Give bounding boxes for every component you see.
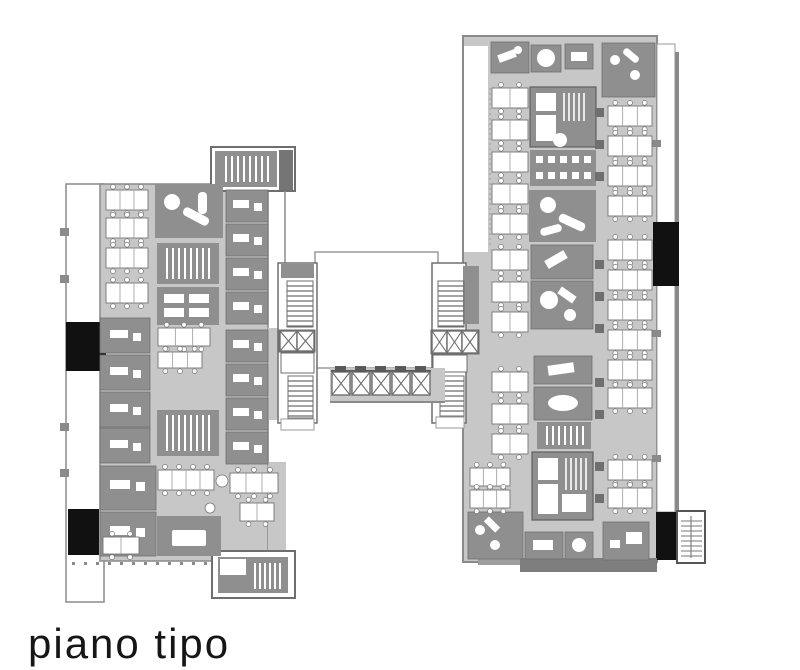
desk — [110, 480, 130, 489]
desk-bench — [608, 324, 652, 355]
round-table — [537, 49, 555, 67]
balcony-tick — [652, 330, 661, 337]
left-gap — [464, 46, 488, 252]
table — [189, 294, 209, 303]
desk — [254, 377, 262, 385]
floor-plan-canvas: piano tipo — [0, 0, 800, 670]
balcony-tick — [60, 423, 69, 431]
table — [164, 308, 184, 317]
desk — [610, 540, 620, 548]
desk — [133, 333, 141, 341]
wc-stalls — [547, 426, 583, 445]
sofa — [540, 197, 556, 213]
round-table — [572, 538, 586, 552]
desk — [233, 302, 249, 310]
desk-bench — [608, 354, 652, 385]
desk — [133, 443, 141, 451]
vestibule — [281, 353, 314, 373]
truss-cap — [355, 366, 366, 372]
table — [533, 540, 553, 550]
desk — [254, 411, 262, 419]
desk-bench — [608, 294, 652, 325]
floor-plan-svg — [0, 0, 800, 670]
desk — [254, 305, 262, 313]
truss-cap — [395, 366, 406, 372]
left-core-top — [281, 264, 314, 278]
elevator-cab — [447, 331, 462, 353]
table — [626, 532, 642, 544]
desk — [254, 343, 262, 351]
desk-bench — [106, 277, 148, 308]
plan-title: piano tipo — [28, 620, 230, 668]
balcony-tick — [60, 469, 69, 477]
lounge-room — [468, 512, 523, 559]
table — [189, 308, 209, 317]
landing — [436, 417, 464, 428]
truss-cap — [375, 366, 386, 372]
elevator-cab — [297, 331, 314, 351]
desk-bench — [470, 484, 510, 513]
desk — [254, 271, 262, 279]
desk-bench — [608, 100, 652, 131]
balcony-tick — [60, 228, 69, 236]
truss-panel — [372, 372, 390, 395]
desk — [233, 374, 249, 382]
desk — [136, 482, 145, 491]
desk-bench — [608, 130, 652, 161]
desk — [136, 528, 145, 537]
desk-bench — [608, 160, 652, 191]
right-wing — [463, 36, 705, 572]
desk — [233, 234, 249, 242]
desk-bench — [106, 184, 148, 215]
core-cell — [562, 494, 586, 512]
desk — [233, 340, 249, 348]
truss-panel — [392, 372, 410, 395]
core-lobby — [553, 133, 567, 147]
desk — [133, 407, 141, 415]
desk-bench — [158, 346, 202, 373]
core-cell — [538, 484, 558, 514]
desk — [110, 440, 128, 448]
desk-bench — [608, 234, 652, 265]
outer-edge — [675, 52, 679, 552]
oval-table — [548, 395, 578, 411]
balcony-tick — [652, 455, 661, 462]
plant — [490, 540, 500, 550]
desk — [233, 442, 249, 450]
sofa — [164, 194, 180, 210]
desk — [110, 330, 128, 338]
round-table — [205, 503, 215, 513]
sofa — [198, 192, 207, 214]
central-link — [278, 191, 479, 430]
chair — [514, 46, 522, 54]
meeting-room — [157, 287, 219, 325]
elevator-cab — [432, 331, 447, 353]
truss-panel — [352, 372, 370, 395]
plant — [630, 70, 640, 80]
truss-cap — [335, 366, 346, 372]
round-table — [216, 475, 228, 487]
desk — [110, 404, 128, 412]
balcony-tick — [652, 140, 661, 147]
desk — [254, 237, 262, 245]
core-black — [68, 509, 99, 555]
landing — [281, 419, 314, 430]
plant — [564, 309, 576, 321]
right-core-edge — [463, 266, 479, 324]
core-cell — [536, 115, 556, 141]
round-table — [540, 291, 558, 309]
elevator-cab — [280, 331, 297, 351]
core-cell — [538, 458, 558, 480]
desk-bench — [608, 482, 652, 513]
desk-bench — [106, 242, 148, 273]
desk-bench — [608, 454, 652, 485]
desk — [571, 52, 587, 61]
top-annex-bar — [279, 150, 293, 190]
table — [164, 294, 184, 303]
desk — [133, 370, 141, 378]
courtyard — [315, 252, 438, 368]
desk-bench — [608, 190, 652, 221]
desk-bench — [608, 382, 652, 413]
core-black — [656, 512, 679, 560]
desk-bench — [230, 467, 278, 498]
balcony-tick — [60, 275, 69, 283]
core-black — [653, 222, 679, 286]
desk — [233, 200, 249, 208]
desk-bench — [106, 212, 148, 243]
desk — [254, 445, 262, 453]
truss-panel — [332, 372, 350, 395]
office — [531, 245, 593, 279]
desk-bench — [608, 264, 652, 295]
plant — [475, 525, 485, 535]
desk — [233, 408, 249, 416]
bottom-annex-cell — [220, 559, 246, 575]
elevator-cab — [462, 331, 478, 353]
truss-cap — [415, 366, 426, 372]
desk — [233, 268, 249, 276]
desk — [254, 203, 262, 211]
wc-block — [530, 150, 596, 186]
truss-panel — [412, 372, 430, 395]
plant — [610, 55, 620, 65]
table — [172, 530, 206, 546]
desk — [110, 367, 128, 375]
core-cell — [536, 93, 556, 111]
